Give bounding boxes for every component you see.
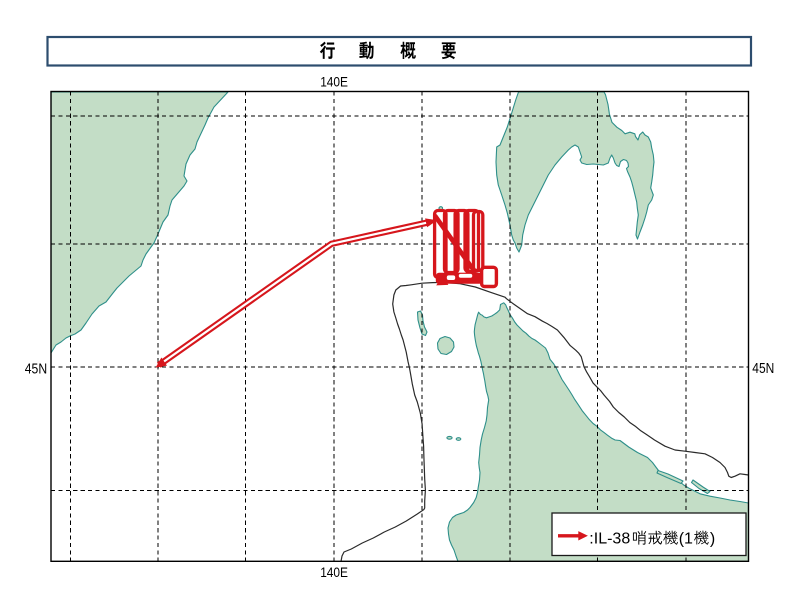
svg-text:45N: 45N bbox=[752, 361, 774, 377]
svg-text:(1: (1 bbox=[679, 531, 693, 548]
svg-text::IL-38: :IL-38 bbox=[589, 531, 630, 548]
svg-text:140E: 140E bbox=[320, 565, 348, 580]
svg-text:): ) bbox=[710, 531, 715, 548]
svg-text:45N: 45N bbox=[25, 361, 47, 377]
svg-text:140E: 140E bbox=[320, 74, 348, 89]
